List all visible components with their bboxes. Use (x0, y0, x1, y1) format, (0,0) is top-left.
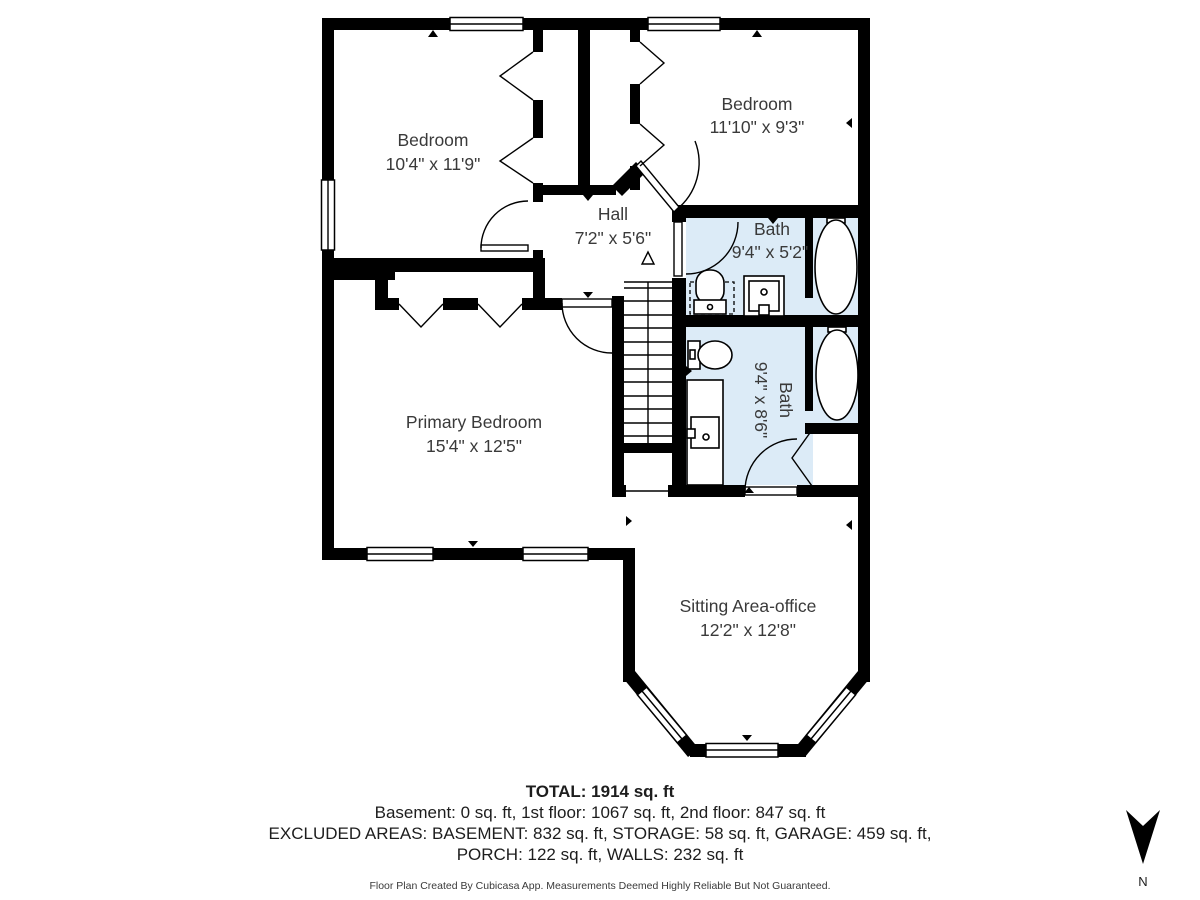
room-dims-sitting-area: 12'2" x 12'8" (700, 620, 796, 640)
window (322, 180, 335, 250)
floor-plan-svg: Bedroom 10'4" x 11'9" Bedroom 11'10" x 9… (0, 0, 1200, 900)
summary-total: TOTAL: 1914 sq. ft (0, 781, 1200, 802)
toilet-icon (688, 341, 732, 369)
room-dims-primary-bedroom: 15'4" x 12'5" (426, 436, 522, 456)
stairs-up-arrow-icon (642, 252, 654, 264)
room-label-bath-upper: Bath (754, 219, 790, 239)
window (706, 744, 778, 758)
bay-window-left (637, 687, 686, 743)
summary-disclaimer: Floor Plan Created By Cubicasa App. Meas… (0, 876, 1200, 897)
sink-vanity-icon (687, 380, 723, 485)
summary-floors: Basement: 0 sq. ft, 1st floor: 1067 sq. … (0, 802, 1200, 823)
room-dims-bedroom-right: 11'10" x 9'3" (710, 117, 805, 137)
bay-window-right (806, 687, 855, 743)
room-dims-hall: 7'2" x 5'6" (575, 228, 652, 248)
summary-excluded-line2: PORCH: 122 sq. ft, WALLS: 232 sq. ft (0, 844, 1200, 865)
room-label-hall: Hall (598, 204, 628, 224)
window (648, 18, 720, 31)
room-dims-bedroom-left: 10'4" x 11'9" (386, 154, 481, 174)
room-label-bedroom-left: Bedroom (397, 130, 468, 150)
bath-lower-closet-floor (813, 434, 858, 485)
room-label-sitting-area: Sitting Area-office (680, 596, 817, 616)
room-dims-bath-upper: 9'4" x 5'2" (732, 242, 809, 262)
staircase (624, 252, 672, 491)
window (450, 18, 523, 31)
area-summary: TOTAL: 1914 sq. ft Basement: 0 sq. ft, 1… (0, 781, 1200, 897)
summary-excluded-line1: EXCLUDED AREAS: BASEMENT: 832 sq. ft, ST… (0, 823, 1200, 844)
sink-vanity-icon (744, 276, 784, 316)
room-label-bath-lower: Bath (776, 382, 796, 418)
door-primary-bedroom (562, 299, 612, 353)
room-label-primary-bedroom: Primary Bedroom (406, 412, 542, 432)
floor-plan-page: Bedroom 10'4" x 11'9" Bedroom 11'10" x 9… (0, 0, 1200, 900)
window (367, 548, 433, 561)
room-label-bedroom-right: Bedroom (721, 94, 792, 114)
door-bedroom-right (636, 141, 699, 212)
door-bedroom-left (481, 201, 528, 251)
bathtub-icon (815, 218, 857, 314)
room-dims-bath-lower: 9'4" x 8'6" (751, 362, 771, 439)
window (523, 548, 588, 561)
